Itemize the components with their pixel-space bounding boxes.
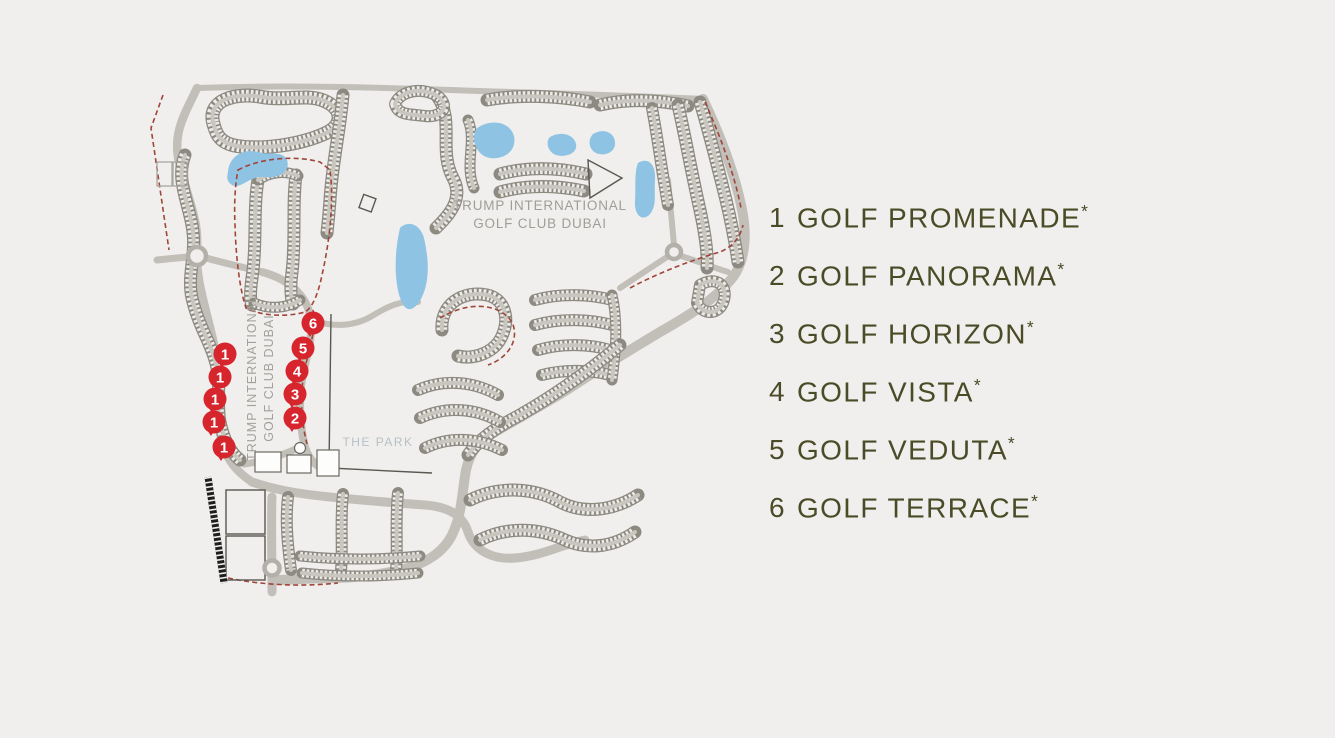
club-label-vertical-line1: TRUMP INTERNATIONAL [245,295,259,461]
club-label-line1: TRUMP INTERNATIONAL [453,198,627,213]
legend-item-number: 1 [769,192,786,244]
legend-item-3: 3GOLF HORIZON* [769,302,1088,360]
svg-text:1: 1 [220,440,228,457]
legend-item-number: 5 [769,424,786,476]
site-map: TRUMP INTERNATIONAL GOLF CLUB DUBAI TRUM… [0,0,1335,738]
legend-item-1: 1GOLF PROMENADE* [769,186,1088,244]
legend-item-6: 6GOLF TERRACE* [769,476,1088,534]
legend-item-label: GOLF PROMENADE [797,202,1081,233]
svg-text:1: 1 [216,370,224,387]
map-pin-5: 5 [292,337,315,363]
legend-item-number: 4 [769,366,786,418]
map-pin-1: 1 [209,366,232,392]
svg-text:3: 3 [291,387,299,404]
svg-text:6: 6 [309,316,317,333]
legend-item-label: GOLF TERRACE [797,492,1031,523]
legend-item-asterisk: * [1027,317,1034,337]
legend-item-5: 5GOLF VEDUTA* [769,418,1088,476]
svg-text:4: 4 [293,364,302,381]
club-label-vertical-line2: GOLF CLUB DUBAI [262,314,276,442]
park-label: THE PARK [342,435,413,449]
legend-item-label: GOLF PANORAMA [797,260,1057,291]
svg-text:2: 2 [291,411,299,428]
legend-item-label: GOLF HORIZON [797,318,1027,349]
map-pin-6: 6 [302,312,325,338]
masterplan-figure: TRUMP INTERNATIONAL GOLF CLUB DUBAI TRUM… [0,0,1335,738]
svg-text:1: 1 [210,415,218,432]
legend-item-asterisk: * [1008,433,1015,453]
legend-item-4: 4GOLF VISTA* [769,360,1088,418]
svg-text:1: 1 [211,392,219,409]
legend-item-label: GOLF VISTA [797,376,974,407]
legend: 1GOLF PROMENADE* 2GOLF PANORAMA* 3GOLF H… [769,186,1088,534]
legend-item-asterisk: * [1031,491,1038,511]
legend-item-number: 6 [769,482,786,534]
legend-item-asterisk: * [974,375,981,395]
legend-item-asterisk: * [1081,201,1088,221]
legend-item-label: GOLF VEDUTA [797,434,1008,465]
legend-item-number: 2 [769,250,786,302]
legend-item-asterisk: * [1057,259,1064,279]
legend-item-2: 2GOLF PANORAMA* [769,244,1088,302]
svg-text:1: 1 [221,347,229,364]
legend-item-number: 3 [769,308,786,360]
club-label-line2: GOLF CLUB DUBAI [473,216,607,231]
svg-text:5: 5 [299,341,307,358]
